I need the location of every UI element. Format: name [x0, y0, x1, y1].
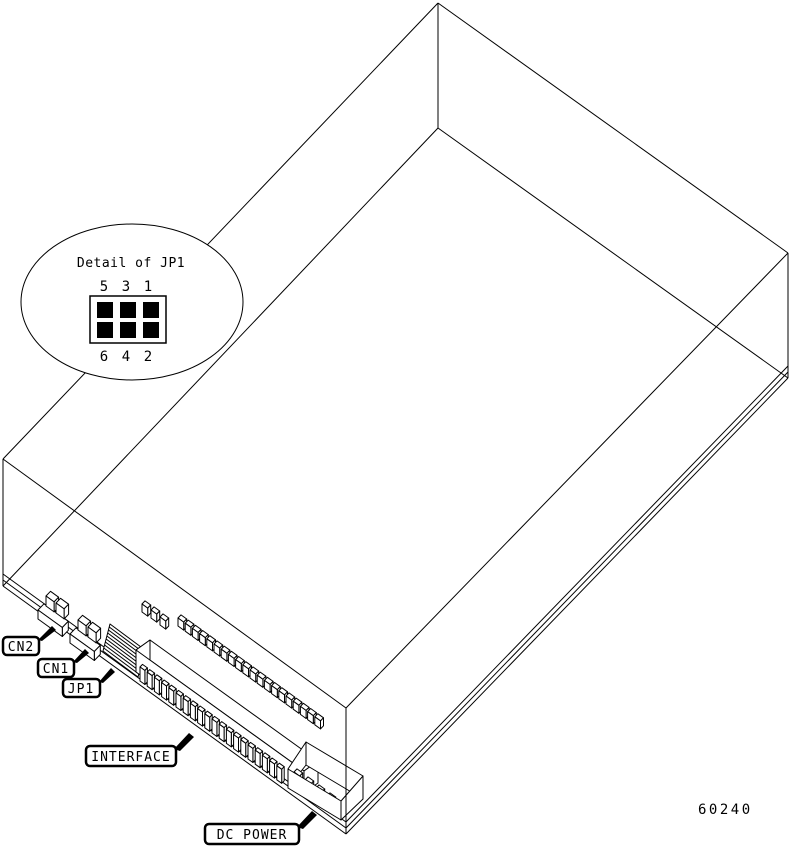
label-pointer	[99, 668, 115, 683]
label-pointer	[297, 811, 317, 829]
chassis-wireframe	[3, 3, 788, 834]
pin-number-2: 2	[144, 349, 152, 365]
jp1-pins	[142, 601, 169, 629]
label-pointer	[38, 626, 56, 641]
label-dc-power: DC POWER	[205, 811, 317, 844]
label-pointer	[174, 733, 194, 751]
pin-number-5: 5	[100, 279, 108, 295]
label-text: DC POWER	[217, 828, 288, 843]
pin-number-3: 3	[122, 279, 130, 295]
figure-number: 60240	[698, 802, 753, 818]
label-interface: INTERFACE	[86, 733, 194, 766]
pin-number-4: 4	[122, 349, 130, 365]
drive-isometric-diagram: Detail of JP1 5 3 1 6 4 2 CN2 CN1 JP1	[0, 0, 790, 849]
pin-number-6: 6	[100, 349, 108, 365]
label-text: JP1	[68, 682, 94, 697]
jp1-detail-callout: Detail of JP1 5 3 1 6 4 2	[21, 224, 243, 380]
label-text: CN1	[43, 662, 69, 677]
label-text: CN2	[8, 640, 34, 655]
label-cn1: CN1	[38, 649, 89, 677]
jp1-pin-grid	[90, 296, 166, 343]
pin-number-1: 1	[144, 279, 152, 295]
label-text: INTERFACE	[91, 750, 170, 765]
callout-title: Detail of JP1	[77, 256, 185, 271]
figure-canvas: Detail of JP1 5 3 1 6 4 2 CN2 CN1 JP1	[0, 0, 790, 849]
label-cn2: CN2	[3, 626, 56, 655]
dc-power-connector	[288, 742, 363, 820]
